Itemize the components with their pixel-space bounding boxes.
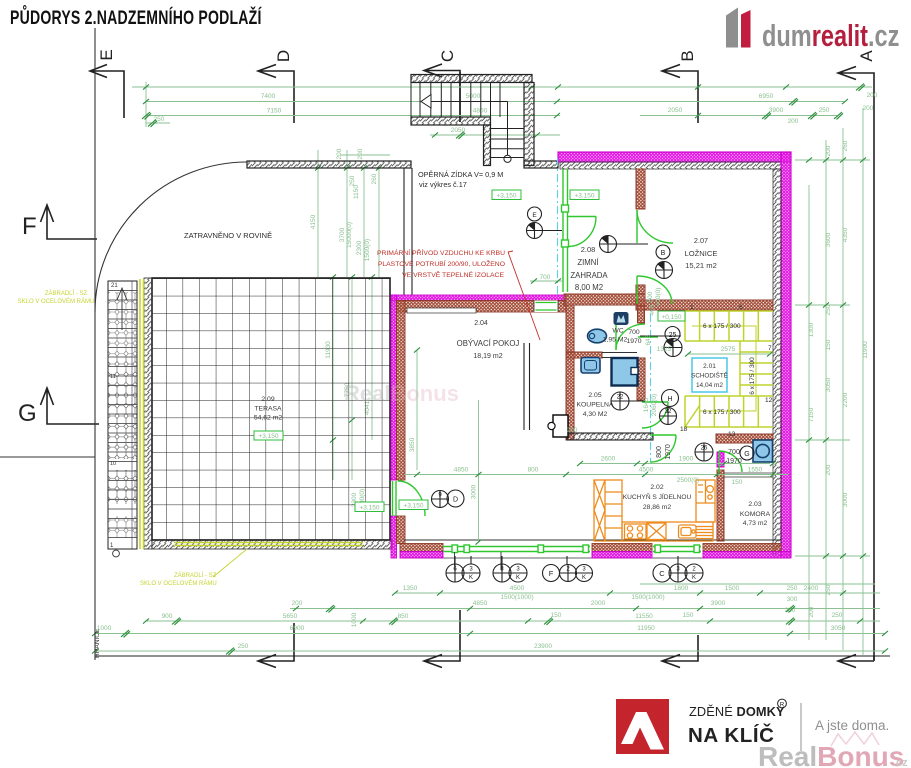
svg-text:2.08: 2.08 <box>581 245 596 254</box>
svg-text:18: 18 <box>680 426 688 433</box>
svg-text:200: 200 <box>863 105 874 112</box>
svg-text:1970: 1970 <box>665 444 672 460</box>
svg-text:260: 260 <box>371 173 378 184</box>
svg-text:dumrealit.cz: dumrealit.cz <box>762 18 899 53</box>
svg-text:200: 200 <box>825 464 832 475</box>
svg-text:6 x 175 / 300: 6 x 175 / 300 <box>749 357 756 395</box>
svg-text:1500(0): 1500(0) <box>364 239 371 261</box>
svg-text:700: 700 <box>628 329 640 336</box>
svg-text:A jste doma.: A jste doma. <box>815 718 889 733</box>
svg-text:3700: 3700 <box>339 227 346 242</box>
svg-text:K: K <box>692 575 696 581</box>
svg-text:4,73 m2: 4,73 m2 <box>743 520 768 527</box>
svg-text:18,19 m2: 18,19 m2 <box>473 353 502 360</box>
svg-text:15,21 m2: 15,21 m2 <box>685 261 717 270</box>
svg-text:1,95 M2: 1,95 M2 <box>603 337 628 344</box>
svg-text:K: K <box>516 575 520 581</box>
svg-text:+3,150: +3,150 <box>574 193 594 200</box>
svg-text:4500: 4500 <box>639 467 654 474</box>
svg-text:D: D <box>274 50 293 62</box>
svg-text:+3,150: +3,150 <box>403 503 423 510</box>
svg-text:2300: 2300 <box>356 240 363 255</box>
svg-text:200: 200 <box>788 118 799 125</box>
svg-text:B: B <box>661 250 666 257</box>
svg-text:4350: 4350 <box>842 227 849 242</box>
svg-text:K: K <box>582 575 586 581</box>
svg-text:2575: 2575 <box>721 346 736 353</box>
svg-text:2.07: 2.07 <box>694 236 708 245</box>
svg-text:800: 800 <box>656 446 663 458</box>
svg-text:2.02: 2.02 <box>650 484 663 491</box>
svg-text:2.04: 2.04 <box>474 320 488 327</box>
svg-text:6: 6 <box>739 304 743 311</box>
svg-text:7150: 7150 <box>267 108 282 115</box>
svg-text:1800: 1800 <box>674 585 689 592</box>
svg-text:6 x 175 / 300: 6 x 175 / 300 <box>703 409 741 416</box>
svg-text:250: 250 <box>825 304 832 315</box>
svg-text:800: 800 <box>528 467 539 474</box>
svg-text:1645: 1645 <box>643 397 650 412</box>
svg-text:15000(0): 15000(0) <box>346 222 353 248</box>
svg-text:250: 250 <box>238 643 249 650</box>
svg-text:6 x 175 / 300: 6 x 175 / 300 <box>703 323 741 330</box>
svg-text:D: D <box>453 497 458 504</box>
svg-text:LOŽNICE: LOŽNICE <box>685 249 718 258</box>
svg-text:5000: 5000 <box>466 93 481 100</box>
svg-text:250: 250 <box>825 584 832 595</box>
svg-text:TERASA: TERASA <box>254 406 282 413</box>
svg-text:A: A <box>857 50 876 62</box>
svg-text:2.03: 2.03 <box>748 501 761 508</box>
svg-text:RealBonus: RealBonus <box>344 381 459 406</box>
svg-text:+3,150: +3,150 <box>496 193 516 200</box>
svg-text:200: 200 <box>808 606 815 617</box>
svg-text:RealBonus: RealBonus <box>758 741 904 768</box>
svg-text:6950: 6950 <box>759 93 774 100</box>
svg-text:SCHODIŠTĚ: SCHODIŠTĚ <box>691 371 728 380</box>
svg-text:ZIMNÍ: ZIMNÍ <box>577 258 599 267</box>
svg-text:400: 400 <box>649 304 656 315</box>
svg-text:7: 7 <box>768 345 772 352</box>
svg-text:700: 700 <box>728 449 740 456</box>
svg-text:3850: 3850 <box>409 437 416 452</box>
svg-text:4850: 4850 <box>473 600 488 607</box>
svg-text:2.09: 2.09 <box>261 396 274 403</box>
svg-text:4500: 4500 <box>510 585 525 592</box>
svg-text:1970: 1970 <box>726 458 742 465</box>
svg-text:4,30 M2: 4,30 M2 <box>583 411 608 418</box>
svg-text:C: C <box>659 569 665 578</box>
svg-text:645: 645 <box>645 334 652 345</box>
svg-text:250: 250 <box>349 175 356 186</box>
svg-text:KOUPELNA: KOUPELNA <box>576 402 613 409</box>
svg-text:7150: 7150 <box>808 407 815 422</box>
svg-text:3000: 3000 <box>842 492 849 507</box>
svg-text:HRANICE: HRANICE <box>94 628 101 658</box>
svg-text:viz výkres č.17: viz výkres č.17 <box>419 180 467 189</box>
svg-text:ZÁBRADLÍ - SZ: ZÁBRADLÍ - SZ <box>174 572 217 579</box>
svg-text:F: F <box>549 569 554 578</box>
svg-text:3900: 3900 <box>769 107 784 114</box>
svg-text:2000: 2000 <box>591 600 606 607</box>
svg-text:200: 200 <box>567 427 578 434</box>
svg-text:.cz: .cz <box>893 757 908 768</box>
svg-text:PRIMÁRNÍ PŘÍVOD VZDUCHU KE KRB: PRIMÁRNÍ PŘÍVOD VZDUCHU KE KRBU <box>377 248 505 257</box>
svg-text:11900: 11900 <box>862 341 869 359</box>
svg-text:800: 800 <box>647 291 654 302</box>
svg-text:200: 200 <box>357 148 364 159</box>
svg-text:400(0): 400(0) <box>655 288 662 307</box>
svg-text:B: B <box>678 50 697 61</box>
svg-text:1500(1000): 1500(1000) <box>500 594 533 601</box>
svg-text:250: 250 <box>787 585 798 592</box>
svg-text:ZÁBRADLÍ - SZ: ZÁBRADLÍ - SZ <box>45 290 88 297</box>
svg-text:300: 300 <box>787 596 798 603</box>
svg-text:2050: 2050 <box>451 127 466 134</box>
svg-text:SKLO V OCELOVÉM RÁMU: SKLO V OCELOVÉM RÁMU <box>140 580 217 587</box>
svg-text:1500(1000): 1500(1000) <box>631 594 664 601</box>
svg-text:2060(0): 2060(0) <box>651 394 658 416</box>
svg-text:150: 150 <box>683 612 694 619</box>
svg-text:G: G <box>744 451 749 458</box>
svg-text:OPĚRNÁ ZÍDKA V= 0,9 M: OPĚRNÁ ZÍDKA V= 0,9 M <box>418 170 503 179</box>
svg-text:13: 13 <box>728 431 736 438</box>
svg-text:F: F <box>22 213 37 240</box>
svg-text:ZDĚNÉ DOMKY: ZDĚNÉ DOMKY <box>689 704 785 719</box>
svg-text:11950: 11950 <box>637 625 655 632</box>
svg-text:H: H <box>667 396 672 403</box>
svg-text:2500(0): 2500(0) <box>677 477 699 484</box>
svg-text:6900: 6900 <box>290 625 305 632</box>
svg-text:2200: 2200 <box>842 392 849 407</box>
svg-text:200: 200 <box>292 600 303 607</box>
svg-text:WC: WC <box>612 328 623 335</box>
svg-text:4850: 4850 <box>454 467 469 474</box>
svg-text:11: 11 <box>110 374 116 380</box>
svg-text:PLASTOVÉ POTRUBÍ 200/90, ULOŽE: PLASTOVÉ POTRUBÍ 200/90, ULOŽENO <box>378 259 505 268</box>
svg-text:1970: 1970 <box>626 338 641 345</box>
svg-text:PŮDORYS 2.NADZEMNÍHO PODLAŽÍ: PŮDORYS 2.NADZEMNÍHO PODLAŽÍ <box>10 6 262 29</box>
svg-text:3600: 3600 <box>825 232 832 247</box>
svg-text:250: 250 <box>819 107 830 114</box>
svg-text:2.05: 2.05 <box>588 392 601 399</box>
svg-text:850: 850 <box>398 613 409 620</box>
svg-text:1000: 1000 <box>351 612 358 627</box>
svg-text:23900: 23900 <box>534 643 552 650</box>
svg-text:1550: 1550 <box>748 467 763 474</box>
svg-text:SKLO V OCELOVÉM RÁMU: SKLO V OCELOVÉM RÁMU <box>18 298 95 305</box>
svg-text:KUCHYŇ S JÍDELNOU: KUCHYŇ S JÍDELNOU <box>623 492 692 501</box>
svg-text:200: 200 <box>867 92 878 99</box>
svg-text:2.01: 2.01 <box>703 363 716 370</box>
svg-text:1300: 1300 <box>808 322 815 337</box>
svg-text:5650: 5650 <box>283 613 298 620</box>
svg-text:14,04 m2: 14,04 m2 <box>696 382 723 389</box>
svg-text:G: G <box>18 400 37 427</box>
svg-text:2600: 2600 <box>601 456 616 463</box>
svg-text:21: 21 <box>111 283 118 289</box>
svg-text:R: R <box>780 702 785 709</box>
svg-text:+0,150: +0,150 <box>661 314 681 321</box>
svg-text:150: 150 <box>732 479 743 486</box>
svg-text:C: C <box>438 50 457 62</box>
svg-text:200: 200 <box>825 145 832 156</box>
svg-text:E: E <box>97 49 116 60</box>
svg-text:150: 150 <box>825 339 832 350</box>
svg-text:3900: 3900 <box>711 600 726 607</box>
svg-text:10: 10 <box>110 461 116 467</box>
svg-text:1350: 1350 <box>403 585 418 592</box>
svg-text:ZATRAVNĚNO V ROVINĚ: ZATRAVNĚNO V ROVINĚ <box>184 231 272 240</box>
svg-text:1150: 1150 <box>353 185 360 199</box>
svg-text:+3,150: +3,150 <box>359 505 379 512</box>
svg-text:54,62 m2: 54,62 m2 <box>254 415 283 422</box>
svg-text:E: E <box>532 212 537 219</box>
svg-text:3050: 3050 <box>831 625 846 632</box>
svg-text:VE VRSTVĚ TEPELNÉ IZOLACE: VE VRSTVĚ TEPELNÉ IZOLACE <box>402 270 504 279</box>
svg-text:1: 1 <box>690 304 694 311</box>
svg-text:2400: 2400 <box>804 585 819 592</box>
svg-text:3050: 3050 <box>825 377 832 392</box>
svg-text:900: 900 <box>162 613 173 620</box>
svg-text:3000: 3000 <box>471 484 478 499</box>
svg-text:+3,150: +3,150 <box>258 433 278 440</box>
svg-text:1325: 1325 <box>657 346 672 353</box>
svg-text:OBÝVACÍ POKOJ: OBÝVACÍ POKOJ <box>457 339 520 348</box>
svg-text:7400: 7400 <box>261 93 276 100</box>
svg-text:12: 12 <box>765 397 773 404</box>
svg-text:2050: 2050 <box>668 107 683 114</box>
svg-text:1900: 1900 <box>679 456 694 463</box>
svg-text:250: 250 <box>832 612 843 619</box>
svg-text:1500: 1500 <box>725 585 740 592</box>
svg-text:700: 700 <box>540 274 551 281</box>
svg-text:K: K <box>469 575 473 581</box>
svg-text:260: 260 <box>842 140 849 151</box>
svg-text:28,86 m2: 28,86 m2 <box>643 504 672 511</box>
svg-text:KOMORA: KOMORA <box>740 511 771 518</box>
svg-text:4150: 4150 <box>310 214 317 229</box>
svg-text:8,00 M2: 8,00 M2 <box>575 283 603 292</box>
svg-text:ZAHRADA: ZAHRADA <box>570 271 608 280</box>
svg-text:4800: 4800 <box>473 108 488 115</box>
svg-text:11550: 11550 <box>635 613 653 620</box>
svg-text:200: 200 <box>336 148 343 159</box>
